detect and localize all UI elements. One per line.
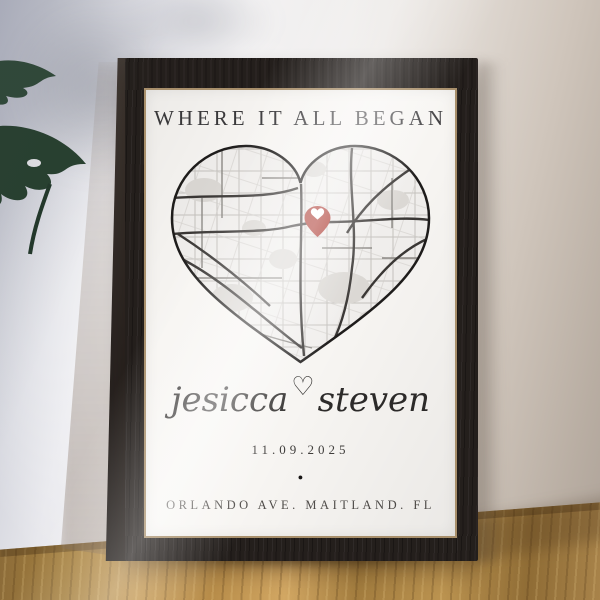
photo-scene: WHERE IT ALL BEGAN (0, 0, 600, 600)
frame-shadow-on-wall-right (478, 62, 504, 562)
picture-frame: WHERE IT ALL BEGAN (125, 58, 478, 561)
name-right: steven (318, 380, 430, 420)
separator-dot: ● (146, 472, 455, 482)
map-texture (162, 138, 439, 370)
monstera-hole (27, 159, 41, 167)
plant-leaf-top (0, 60, 56, 104)
location-address: ORLANDO AVE. MAITLAND. FL (146, 498, 455, 513)
plant-stem (30, 184, 50, 254)
poster-print: WHERE IT ALL BEGAN (146, 90, 455, 536)
plant-leaf-big (0, 126, 86, 206)
heart-map (162, 138, 439, 375)
heart-divider-icon: ♡ (291, 372, 314, 402)
name-left: jesicca (171, 380, 288, 420)
couple-names: jesicca♡steven (146, 380, 455, 420)
poster-title: WHERE IT ALL BEGAN (146, 106, 455, 131)
anniversary-date: 11.09.2025 (146, 442, 455, 458)
